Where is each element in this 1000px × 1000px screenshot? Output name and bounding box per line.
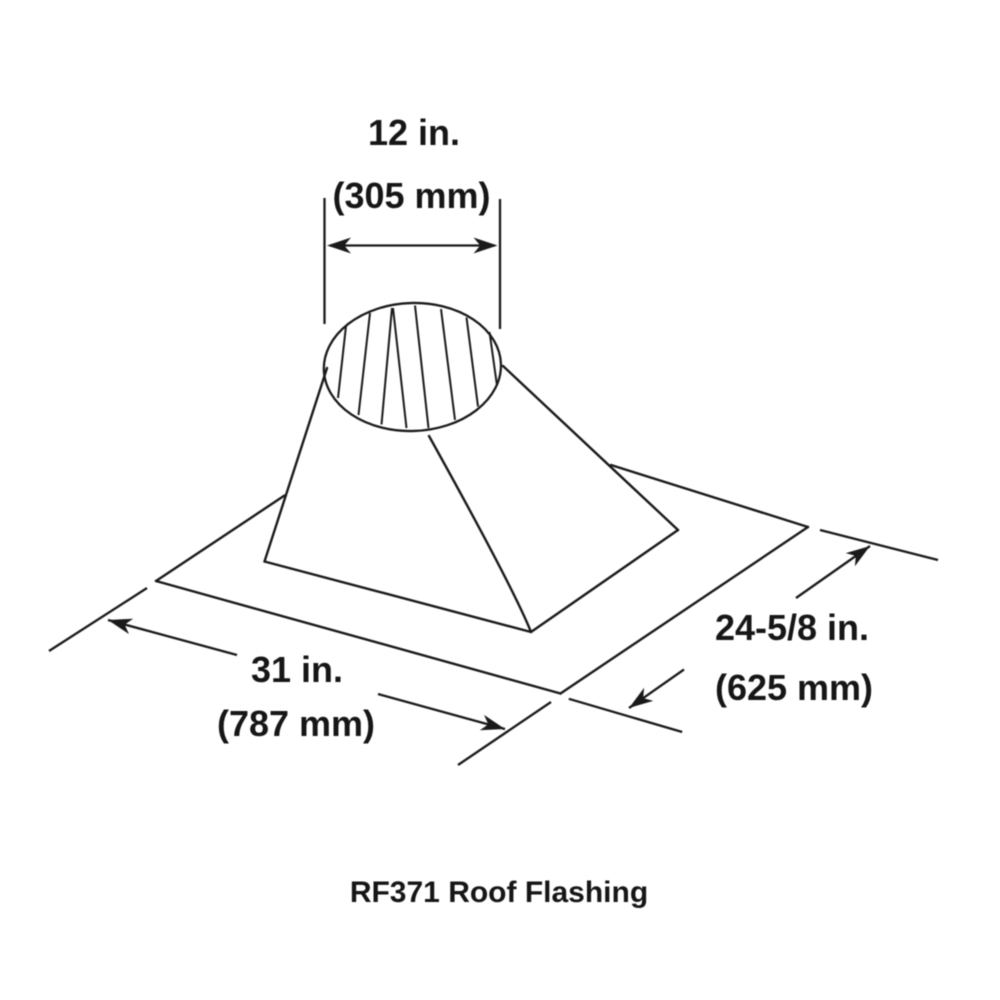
svg-text:(625 mm): (625 mm) — [715, 667, 873, 708]
svg-text:(305 mm): (305 mm) — [332, 175, 490, 216]
svg-text:(787 mm): (787 mm) — [217, 703, 375, 744]
svg-text:12 in.: 12 in. — [368, 112, 460, 153]
svg-text:RF371 Roof Flashing: RF371 Roof Flashing — [350, 876, 648, 909]
svg-text:31 in.: 31 in. — [251, 649, 343, 690]
svg-text:24-5/8 in.: 24-5/8 in. — [715, 607, 869, 648]
